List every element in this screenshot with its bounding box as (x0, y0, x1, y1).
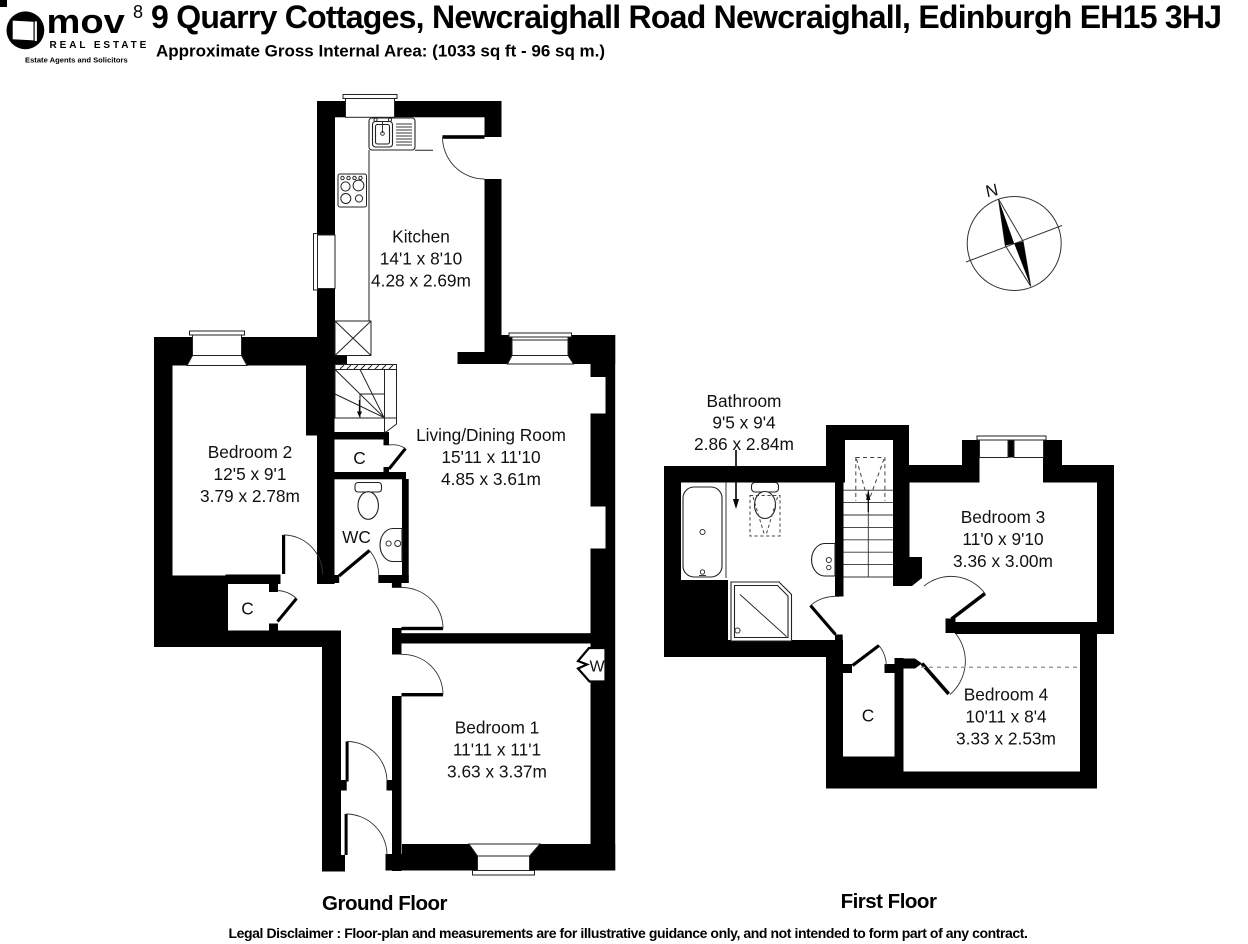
svg-text:C: C (862, 706, 874, 726)
svg-text:W: W (589, 659, 605, 676)
svg-text:C: C (241, 599, 253, 619)
svg-text:10'11 x 8'4: 10'11 x 8'4 (965, 707, 1047, 727)
svg-text:14'1 x 8'10: 14'1 x 8'10 (380, 249, 463, 269)
svg-text:11'0 x 9'10: 11'0 x 9'10 (962, 529, 1043, 549)
svg-text:11'11 x 11'1: 11'11 x 11'1 (453, 740, 541, 760)
svg-text:4.85 x 3.61m: 4.85 x 3.61m (441, 469, 541, 489)
svg-text:3.63 x 3.37m: 3.63 x 3.37m (447, 762, 547, 782)
svg-text:15'11 x 11'10: 15'11 x 11'10 (441, 447, 540, 467)
svg-text:12'5 x 9'1: 12'5 x 9'1 (214, 464, 287, 484)
svg-text:WC: WC (342, 527, 371, 547)
svg-text:Bathroom: Bathroom (707, 391, 782, 411)
svg-text:Bedroom 1: Bedroom 1 (455, 718, 540, 738)
svg-text:9'5 x 9'4: 9'5 x 9'4 (712, 413, 776, 433)
svg-text:9 Quarry Cottages, Newcraighal: 9 Quarry Cottages, Newcraighall Road New… (151, 0, 1221, 35)
svg-text:Ground Floor: Ground Floor (322, 892, 447, 915)
svg-text:Bedroom 4: Bedroom 4 (964, 685, 1049, 705)
svg-text:REAL ESTATE: REAL ESTATE (50, 40, 150, 51)
svg-text:Bedroom 3: Bedroom 3 (961, 507, 1046, 527)
svg-text:8: 8 (133, 2, 143, 22)
svg-text:Kitchen: Kitchen (392, 227, 450, 247)
svg-text:2.86 x 2.84m: 2.86 x 2.84m (694, 434, 794, 454)
svg-text:3.36 x 3.00m: 3.36 x 3.00m (953, 551, 1053, 571)
svg-text:First Floor: First Floor (841, 890, 937, 913)
svg-text:Legal Disclaimer : Floor-plan: Legal Disclaimer : Floor-plan and measur… (229, 925, 1028, 941)
svg-text:N: N (984, 180, 1000, 201)
svg-text:3.33 x 2.53m: 3.33 x 2.53m (956, 729, 1056, 749)
svg-text:C: C (353, 448, 365, 468)
svg-text:mov: mov (47, 2, 125, 41)
svg-text:Bedroom 2: Bedroom 2 (208, 442, 293, 462)
svg-text:Estate Agents and Solicitors: Estate Agents and Solicitors (25, 56, 128, 65)
svg-text:Approximate Gross Internal Are: Approximate Gross Internal Area: (1033 s… (156, 42, 605, 61)
svg-text:3.79 x 2.78m: 3.79 x 2.78m (200, 486, 300, 506)
svg-text:4.28 x 2.69m: 4.28 x 2.69m (371, 271, 471, 291)
svg-text:Living/Dining Room: Living/Dining Room (416, 425, 566, 445)
